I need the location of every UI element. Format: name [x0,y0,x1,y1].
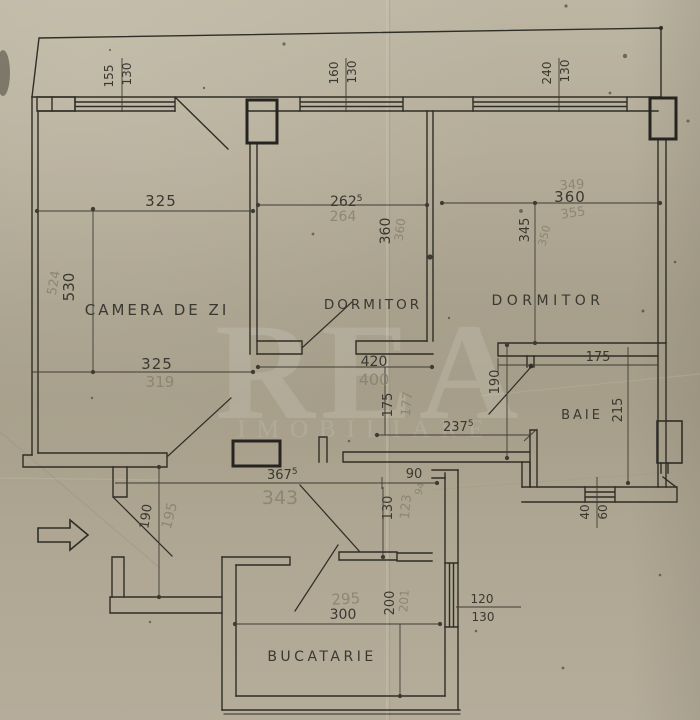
room-bath: BAIE [561,408,603,423]
pencil-bedroom1-width: 264 [330,209,357,225]
bath-window-60: 60 [596,504,610,519]
kitchen-window-130: 130 [472,610,495,624]
window-160-h: 130 [345,61,359,84]
room-kitchen: BUCATARIE [267,649,376,665]
dim-pass-90: 90 [406,467,423,482]
dim-hall-175: 175 [381,393,396,418]
room-bedroom1: DORMITOR [324,297,422,313]
pencil-living-bottom: 319 [146,373,175,391]
window-240-h: 130 [558,60,572,83]
pencil-kitchen-width: 295 [331,589,361,609]
dim-living-bottom: 325 [141,355,173,373]
pencil-hall-175: 177 [399,391,417,417]
floor-plan-scan: REA IMOBILIARE [0,0,700,720]
window-240-w: 240 [540,62,554,85]
dim-kitchen-width: 300 [330,607,357,623]
floor-plan-drawing: REA IMOBILIARE [0,0,700,720]
window-160-w: 160 [327,62,341,85]
dim-bath-width: 175 [586,350,611,365]
pencil-pass-130: 123 [398,494,416,520]
pencil-bedroom1-depth: 360 [392,217,409,241]
pencil-kitchen-depth: 201 [396,589,412,613]
dim-pass-130: 130 [381,496,396,521]
pencil-hall-420: 400 [359,370,390,389]
window-155-w: 155 [102,65,116,88]
kitchen-window-120: 120 [471,592,494,606]
window-155-h: 130 [120,63,134,86]
pencil-hall-total: 343 [262,487,298,509]
dim-hall-420: 420 [361,354,388,370]
room-living: CAMERA DE ZI [85,301,230,319]
dim-living-top: 325 [145,192,177,210]
pencil-bedroom2-above: 349 [559,177,585,194]
bath-window-40: 40 [578,504,592,519]
room-bedroom2: DORMITOR [491,293,604,309]
dim-bath-depth: 215 [611,398,626,423]
dim-bathdoor-190: 190 [488,370,503,395]
dim-bedroom2-depth: 345 [518,218,533,243]
